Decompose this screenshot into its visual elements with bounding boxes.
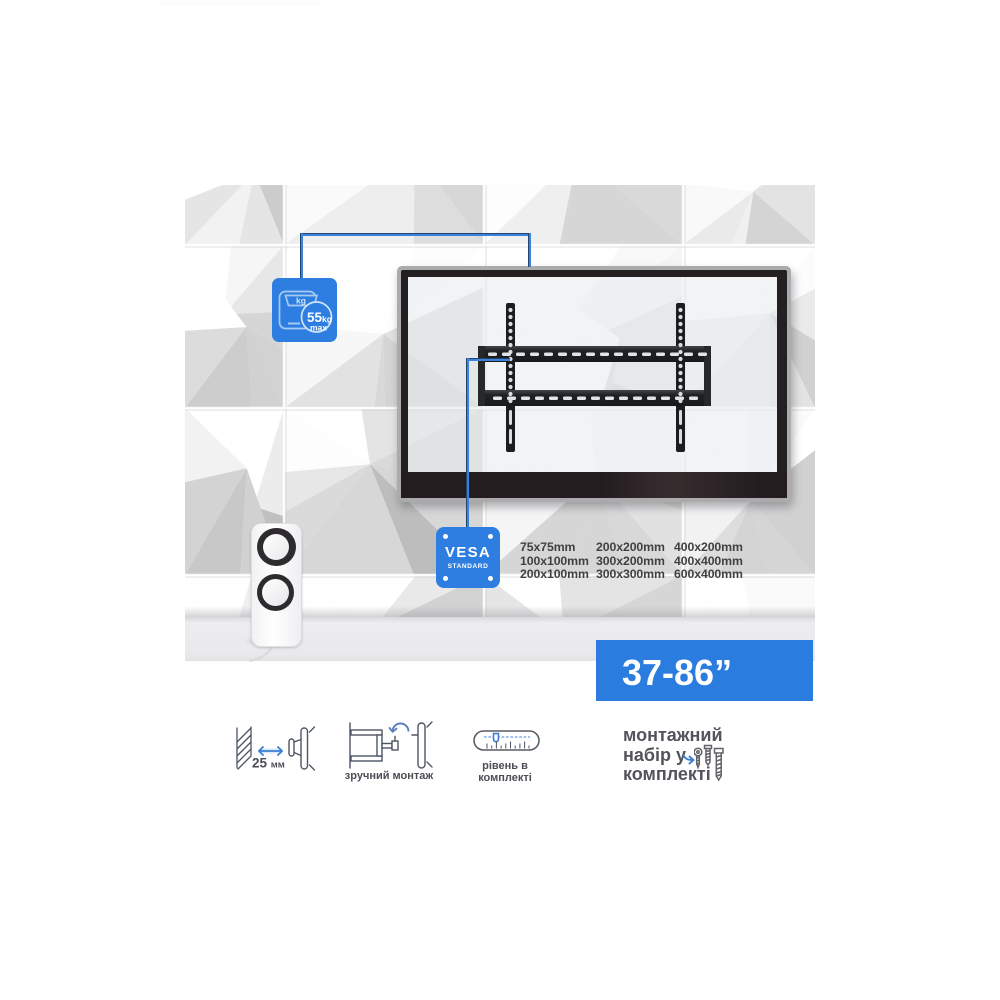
svg-text:max: max — [310, 323, 327, 333]
svg-text:kg: kg — [296, 296, 306, 306]
svg-text:25 мм: 25 мм — [252, 756, 285, 771]
